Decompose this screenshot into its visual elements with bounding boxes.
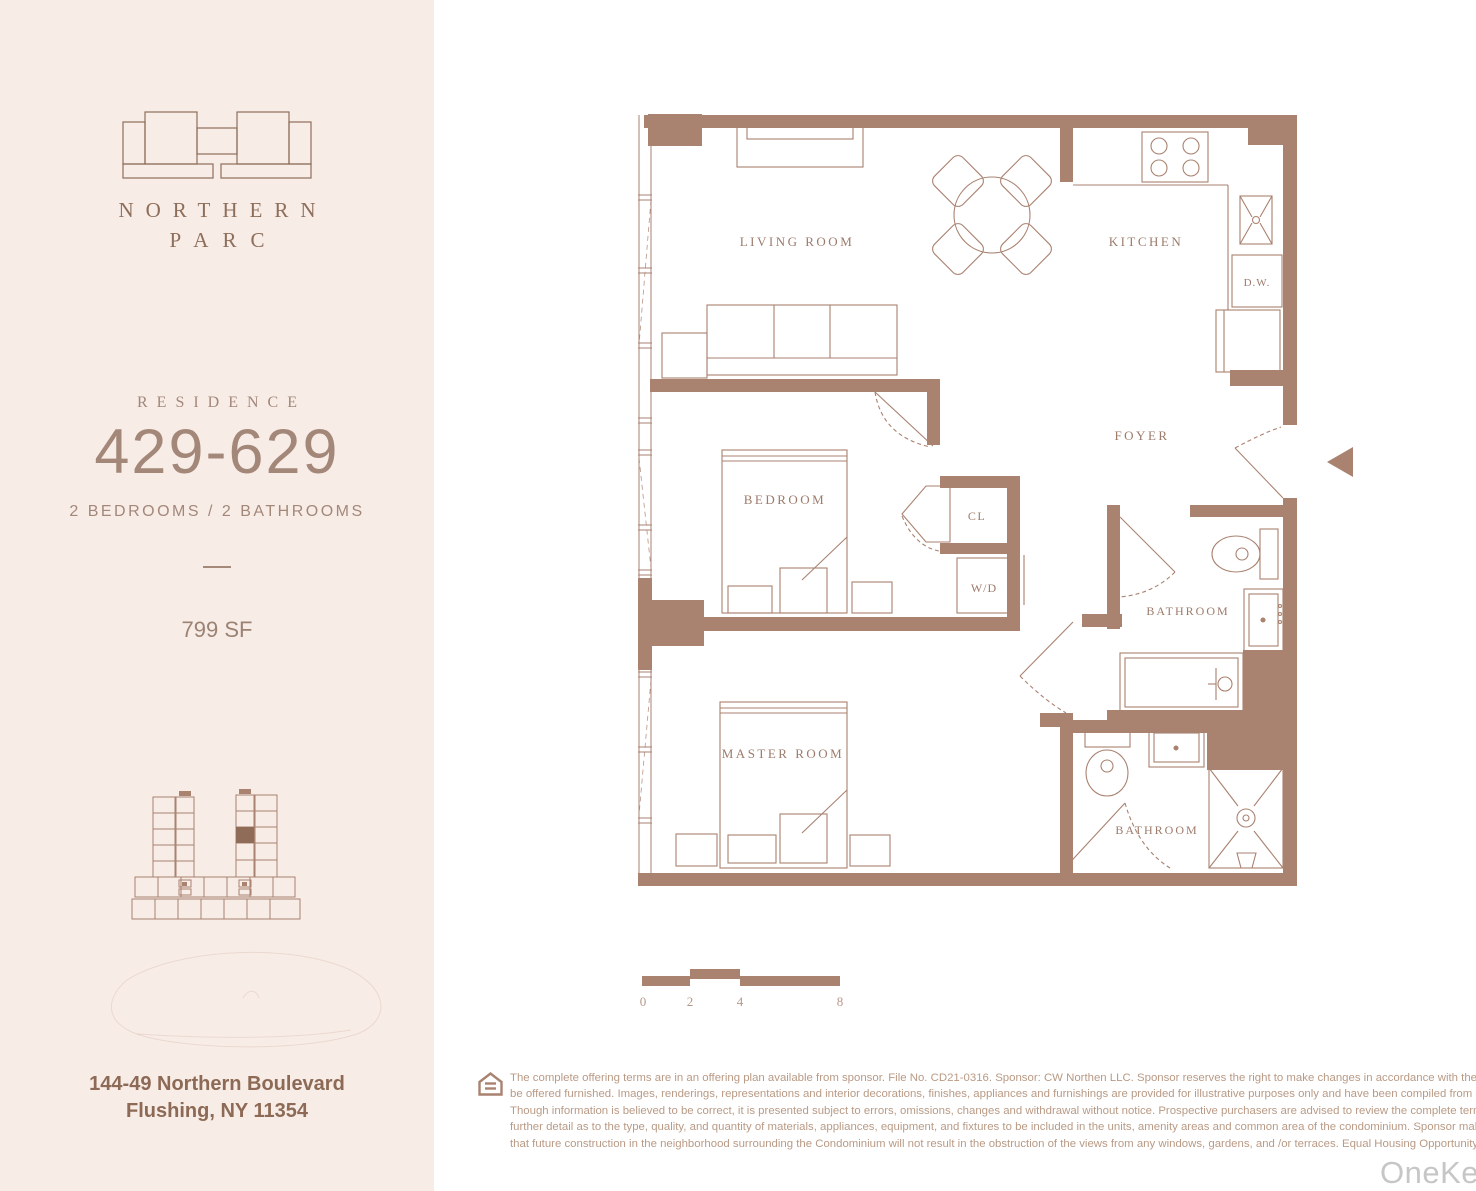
onekey-watermark: OneKey bbox=[1380, 1155, 1476, 1191]
scale-tick-2: 2 bbox=[687, 994, 694, 1009]
dining-table-set bbox=[930, 153, 1055, 278]
divider-rule bbox=[203, 566, 231, 568]
label-bedroom: BEDROOM bbox=[744, 492, 827, 507]
toilet-1 bbox=[1212, 529, 1278, 579]
shower bbox=[1209, 768, 1283, 868]
scale-tick-4: 4 bbox=[737, 994, 744, 1009]
vanity-1 bbox=[1244, 589, 1283, 651]
toilet-2 bbox=[1085, 730, 1130, 796]
sidebar: NORTHERN PARC RESIDENCE 429-629 2 BEDROO… bbox=[0, 0, 434, 1191]
label-living-room: LIVING ROOM bbox=[740, 234, 855, 249]
brand-logo-icon bbox=[115, 106, 319, 190]
disclaimer-text: The complete offering terms are in an of… bbox=[510, 1070, 1476, 1152]
label-foyer: FOYER bbox=[1114, 428, 1169, 443]
window-wall bbox=[638, 115, 652, 873]
label-bathroom-2: BATHROOM bbox=[1115, 823, 1198, 837]
floor-plan-page: NORTHERN PARC RESIDENCE 429-629 2 BEDROO… bbox=[0, 0, 1476, 1191]
closet-door bbox=[902, 486, 950, 542]
beds-baths-line: 2 BEDROOMS / 2 BATHROOMS bbox=[0, 503, 434, 521]
building-key-plan bbox=[130, 773, 305, 923]
side-table bbox=[662, 333, 707, 378]
address-block: 144-49 Northern Boulevard Flushing, NY 1… bbox=[0, 1071, 434, 1125]
scale-bar: 0 2 4 8 bbox=[630, 950, 870, 1012]
disclaimer-line: that future construction in the neighbor… bbox=[510, 1136, 1476, 1152]
address-line1: 144-49 Northern Boulevard bbox=[0, 1071, 434, 1098]
floor-plan-drawing: LIVING ROOM KITCHEN D.W. FOYER BEDROOM C… bbox=[630, 100, 1370, 900]
bathtub bbox=[1120, 653, 1243, 712]
stove bbox=[1142, 132, 1208, 182]
entry-arrow-icon bbox=[1327, 447, 1353, 477]
bedroom-bed bbox=[722, 450, 892, 613]
room-labels: LIVING ROOM KITCHEN D.W. FOYER BEDROOM C… bbox=[722, 234, 1271, 837]
label-kitchen: KITCHEN bbox=[1109, 234, 1184, 249]
scale-tick-8: 8 bbox=[837, 994, 844, 1009]
disclaimer-line: Though information is believed to be cor… bbox=[510, 1103, 1476, 1119]
nightstand bbox=[850, 835, 890, 866]
disclaimer-line: be offered furnished. Images, renderings… bbox=[510, 1086, 1476, 1102]
address-line2: Flushing, NY 11354 bbox=[0, 1098, 434, 1125]
sofa bbox=[662, 305, 897, 378]
nightstand bbox=[852, 582, 892, 613]
brand-name-line2: PARC bbox=[0, 228, 434, 253]
label-closet: CL bbox=[968, 509, 986, 523]
label-bathroom-1: BATHROOM bbox=[1146, 604, 1229, 618]
area-square-feet: 799 SF bbox=[0, 617, 434, 643]
refrigerator bbox=[1216, 310, 1280, 372]
scale-tick-0: 0 bbox=[640, 994, 647, 1009]
tv-console bbox=[737, 125, 863, 167]
label-dishwasher: D.W. bbox=[1244, 277, 1271, 289]
master-bed bbox=[676, 702, 890, 868]
label-master-room: MASTER ROOM bbox=[722, 746, 845, 761]
highlighted-unit bbox=[236, 827, 254, 843]
equal-housing-icon bbox=[477, 1070, 504, 1097]
nightstand bbox=[676, 834, 717, 866]
label-washer-dryer: W/D bbox=[971, 581, 997, 595]
residence-label: RESIDENCE bbox=[0, 394, 434, 412]
disclaimer-line: The complete offering terms are in an of… bbox=[510, 1070, 1476, 1086]
brand-name-line1: NORTHERN bbox=[0, 198, 434, 223]
faint-sketch bbox=[95, 938, 405, 1060]
unit-number: 429-629 bbox=[0, 416, 434, 488]
kitchen-sink bbox=[1240, 196, 1272, 244]
disclaimer-line: further detail as to the type, quality, … bbox=[510, 1119, 1476, 1135]
